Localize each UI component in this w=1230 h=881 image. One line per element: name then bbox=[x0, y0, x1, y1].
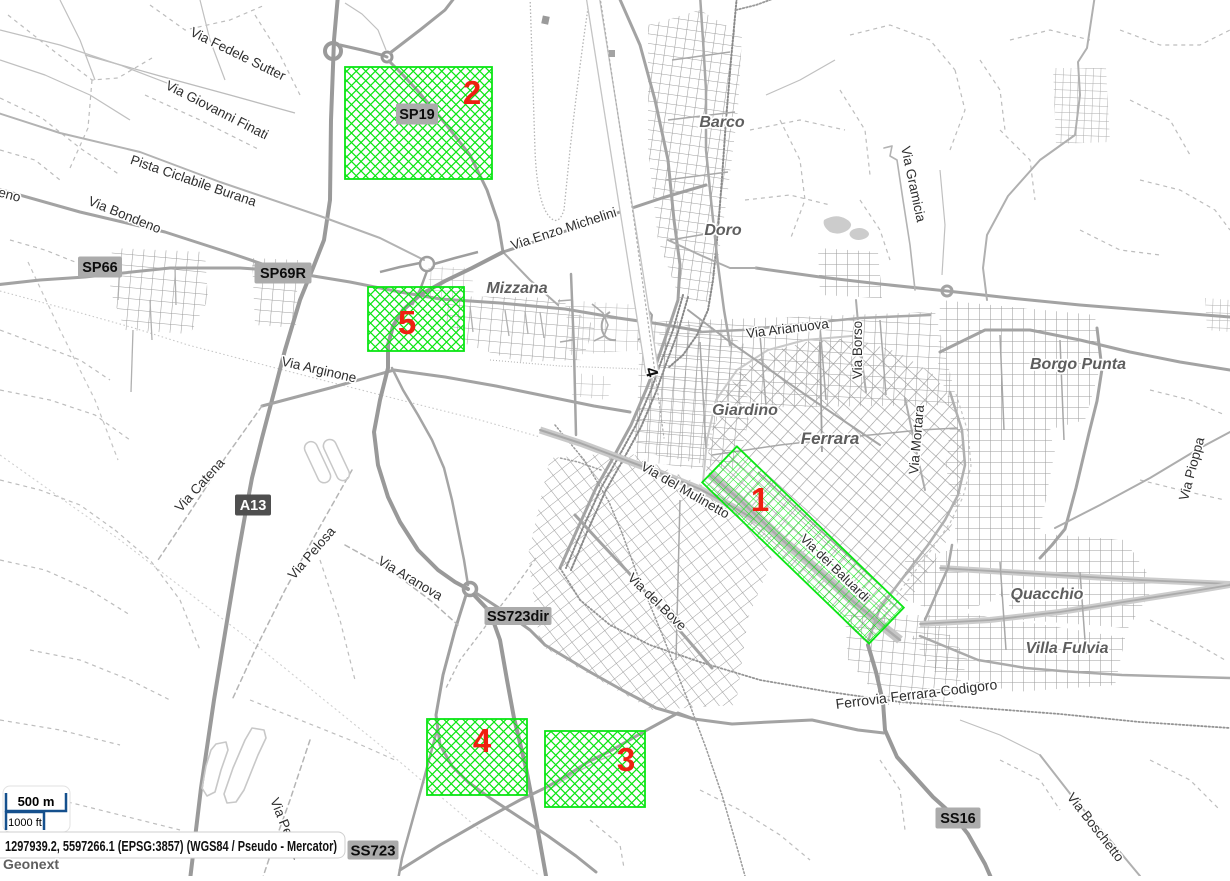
svg-text:Borgo Punta: Borgo Punta bbox=[1030, 356, 1126, 373]
svg-text:SS723: SS723 bbox=[350, 842, 395, 859]
svg-text:Via Borso: Via Borso bbox=[850, 321, 865, 379]
svg-text:Mizzana: Mizzana bbox=[486, 280, 547, 297]
svg-text:SP66: SP66 bbox=[82, 260, 117, 276]
svg-text:3: 3 bbox=[617, 741, 635, 778]
svg-text:SS16: SS16 bbox=[940, 811, 975, 827]
svg-text:500 m: 500 m bbox=[18, 794, 55, 809]
svg-text:5: 5 bbox=[398, 304, 416, 341]
svg-text:Barco: Barco bbox=[699, 114, 745, 131]
svg-text:Geonext: Geonext bbox=[3, 856, 59, 872]
svg-text:Villa Fulvia: Villa Fulvia bbox=[1026, 640, 1109, 657]
svg-text:Quacchio: Quacchio bbox=[1011, 586, 1084, 603]
svg-text:Giardino: Giardino bbox=[712, 402, 778, 419]
svg-text:SS723dir: SS723dir bbox=[487, 609, 549, 625]
svg-text:A13: A13 bbox=[240, 498, 267, 514]
svg-text:Doro: Doro bbox=[704, 222, 742, 239]
svg-text:1000 ft: 1000 ft bbox=[8, 817, 42, 829]
svg-text:Ferrara: Ferrara bbox=[801, 429, 860, 448]
svg-text:4: 4 bbox=[473, 722, 492, 759]
svg-text:SP69R: SP69R bbox=[260, 266, 306, 282]
svg-text:SP19: SP19 bbox=[399, 107, 434, 123]
svg-text:2: 2 bbox=[463, 74, 481, 111]
svg-text:1297939.2, 5597266.1 (EPSG:385: 1297939.2, 5597266.1 (EPSG:3857) (WGS84 … bbox=[5, 838, 337, 855]
svg-text:1: 1 bbox=[751, 481, 769, 518]
